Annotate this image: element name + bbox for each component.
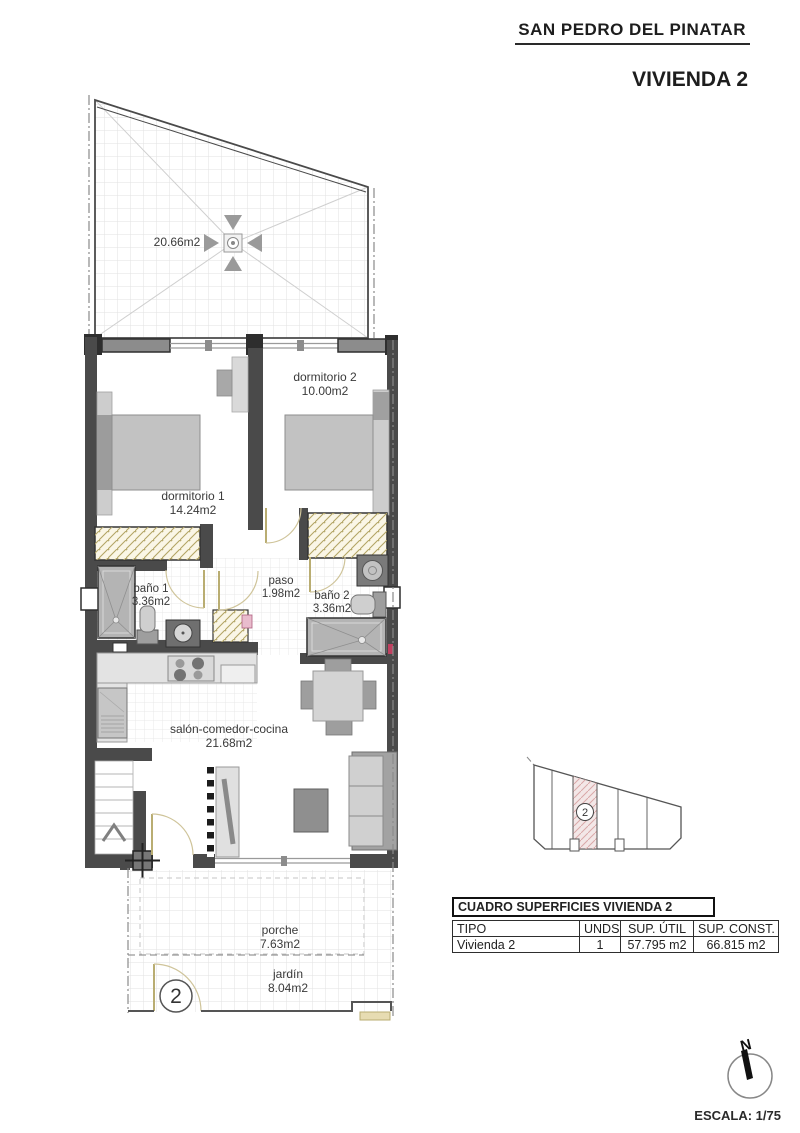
surface-table-header-row: TIPO UNDS. SUP. ÚTIL SUP. CONST.: [453, 921, 779, 937]
floor-plan-drawing: 2 2 N: [0, 0, 800, 1133]
room-label-dormitorio-2: dormitorio 210.00m2: [293, 371, 356, 398]
surface-table: CUADRO SUPERFICIES VIVIENDA 2 TIPO UNDS.…: [452, 897, 778, 953]
col-header-sup-const: SUP. CONST.: [694, 921, 779, 937]
room-label-dormitorio-1: dormitorio 114.24m2: [161, 490, 224, 517]
floorplan-page: SAN PEDRO DEL PINATAR VIVIENDA 2: [0, 0, 800, 1133]
svg-text:2: 2: [170, 985, 182, 1008]
section-marker-strip: [207, 766, 214, 857]
col-header-unds: UNDS.: [580, 921, 621, 937]
cell-sup-const: 66.815 m2: [694, 937, 779, 953]
room-label-paso: paso1.98m2: [262, 575, 300, 600]
svg-text:2: 2: [582, 807, 588, 819]
room-label-salon: salón-comedor-cocina21.68m2: [170, 723, 288, 750]
room-label-porche: porche7.63m2: [260, 924, 300, 951]
hall-closet: [213, 610, 252, 642]
stove-icon: [168, 656, 214, 681]
wardrobe-dormitorio-2: [308, 513, 387, 558]
surface-table-title: CUADRO SUPERFICIES VIVIENDA 2: [452, 897, 715, 917]
living-room-furniture: [207, 752, 397, 857]
fridge-icon: [98, 688, 127, 738]
sofa: [349, 752, 397, 850]
room-label-bano-2: baño 23.36m2: [313, 590, 351, 615]
room-label-bano-1: baño 13.36m2: [132, 583, 170, 608]
compass: N: [728, 1036, 772, 1098]
scale-label: ESCALA: 1/75: [694, 1108, 781, 1123]
unit-number-badge: 2: [160, 980, 192, 1012]
stairs: [95, 761, 133, 854]
cell-sup-util: 57.795 m2: [621, 937, 694, 953]
bed-dormitorio-2: [285, 390, 389, 515]
col-header-sup-util: SUP. ÚTIL: [621, 921, 694, 937]
cell-tipo: Vivienda 2: [453, 937, 580, 953]
desk-dormitorio-1: [217, 357, 248, 412]
col-header-tipo: TIPO: [453, 921, 580, 937]
room-label-solarium: 20.66m2: [154, 236, 201, 250]
roof-terrace: [89, 95, 374, 338]
coffee-table: [294, 789, 328, 832]
room-label-jardin: jardín8.04m2: [268, 968, 308, 995]
cell-unds: 1: [580, 937, 621, 953]
surface-table-row: Vivienda 2 1 57.795 m2 66.815 m2: [453, 937, 779, 953]
dining-set: [301, 659, 376, 735]
site-plan-diagram: 2: [527, 757, 681, 851]
north-label: N: [739, 1036, 754, 1055]
wardrobe-dormitorio-1: [95, 527, 200, 560]
sink-icon: [221, 665, 255, 683]
